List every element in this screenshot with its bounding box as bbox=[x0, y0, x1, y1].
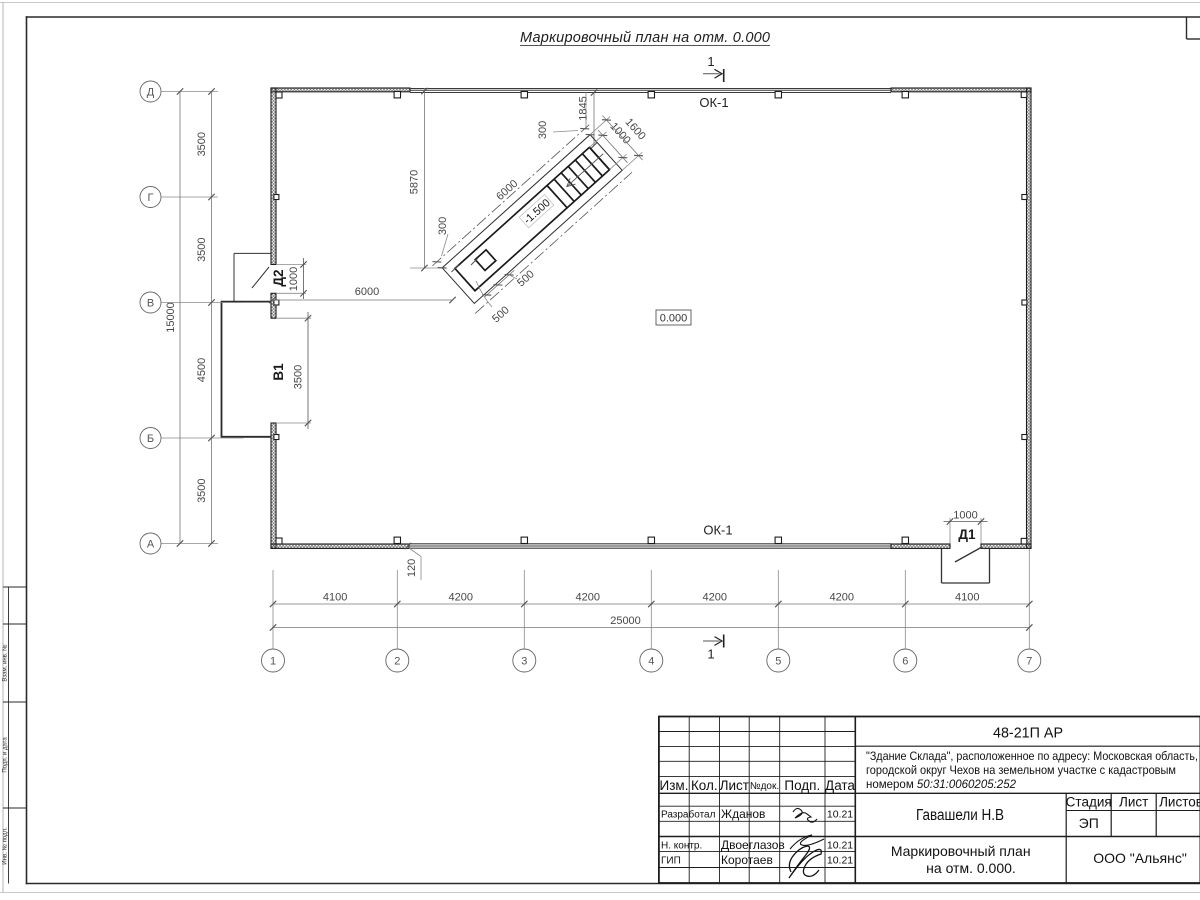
svg-text:"Здание Склада", расположенное: "Здание Склада", расположенное по адресу… bbox=[866, 749, 1198, 763]
svg-text:Б: Б bbox=[147, 433, 154, 445]
svg-text:ГИП: ГИП bbox=[661, 856, 681, 867]
svg-text:4200: 4200 bbox=[576, 592, 600, 604]
svg-text:48-21П АР: 48-21П АР bbox=[993, 725, 1063, 742]
svg-text:5: 5 bbox=[775, 656, 781, 668]
svg-text:Стадия: Стадия bbox=[1066, 795, 1112, 810]
svg-text:7: 7 bbox=[1026, 656, 1032, 668]
svg-text:3500: 3500 bbox=[196, 237, 208, 261]
svg-text:4200: 4200 bbox=[830, 592, 854, 604]
svg-text:Коротаев: Коротаев bbox=[721, 853, 773, 867]
svg-text:№док.: №док. bbox=[750, 781, 779, 792]
svg-text:Разработал: Разработал bbox=[661, 809, 716, 821]
svg-text:3: 3 bbox=[521, 656, 527, 668]
svg-text:ЭП: ЭП bbox=[1079, 815, 1099, 831]
svg-text:5870: 5870 bbox=[409, 170, 421, 194]
svg-text:Д: Д bbox=[147, 87, 155, 99]
svg-text:Лист: Лист bbox=[1119, 795, 1148, 810]
svg-text:Подп. и дата: Подп. и дата bbox=[3, 737, 9, 773]
svg-text:ООО "Альянс": ООО "Альянс" bbox=[1093, 850, 1187, 866]
svg-text:10.21: 10.21 bbox=[827, 855, 853, 867]
svg-text:Маркировочный план: Маркировочный план bbox=[891, 843, 1031, 859]
svg-text:6: 6 bbox=[902, 656, 908, 668]
svg-text:0.000: 0.000 bbox=[660, 313, 688, 325]
svg-text:Изм.: Изм. bbox=[660, 778, 689, 793]
svg-text:4: 4 bbox=[648, 656, 654, 668]
svg-text:15000: 15000 bbox=[165, 302, 177, 333]
svg-text:1000: 1000 bbox=[953, 510, 977, 522]
svg-text:4500: 4500 bbox=[196, 358, 208, 382]
svg-text:25000: 25000 bbox=[610, 615, 641, 627]
svg-text:10.21: 10.21 bbox=[827, 840, 853, 852]
svg-text:1845: 1845 bbox=[578, 96, 590, 120]
svg-text:4100: 4100 bbox=[955, 592, 979, 604]
svg-text:городской округ Чехов на земел: городской округ Чехов на земельном участ… bbox=[866, 763, 1176, 777]
svg-text:Маркировочный план на отм. 0.0: Маркировочный план на отм. 0.000 bbox=[520, 30, 770, 46]
svg-text:1000: 1000 bbox=[288, 267, 300, 291]
svg-text:Д1: Д1 bbox=[958, 527, 976, 542]
svg-text:ОК-1: ОК-1 bbox=[699, 95, 728, 110]
svg-text:Г: Г bbox=[148, 192, 154, 204]
svg-text:3500: 3500 bbox=[196, 478, 208, 502]
svg-text:10.21: 10.21 bbox=[827, 809, 853, 821]
svg-text:6000: 6000 bbox=[355, 286, 379, 298]
svg-text:3500: 3500 bbox=[196, 132, 208, 156]
svg-text:ОК-1: ОК-1 bbox=[703, 523, 732, 538]
svg-text:Кол.: Кол. bbox=[691, 778, 718, 793]
svg-text:Жданов: Жданов bbox=[721, 807, 765, 821]
svg-text:Дата: Дата bbox=[825, 778, 855, 793]
svg-text:номером 50:31:0060205:252: номером 50:31:0060205:252 bbox=[866, 777, 1016, 791]
svg-text:120: 120 bbox=[406, 559, 418, 577]
svg-text:Двоеглазов: Двоеглазов bbox=[721, 838, 785, 852]
svg-text:Гавашели Н.В: Гавашели Н.В bbox=[916, 807, 1004, 824]
svg-text:2: 2 bbox=[394, 656, 400, 668]
svg-text:Инв. № подл.: Инв. № подл. bbox=[2, 827, 9, 865]
svg-text:на отм. 0.000.: на отм. 0.000. bbox=[926, 860, 1016, 876]
svg-text:300: 300 bbox=[537, 121, 549, 139]
svg-text:4200: 4200 bbox=[703, 592, 727, 604]
svg-text:Н. контр.: Н. контр. bbox=[661, 841, 702, 852]
svg-text:1: 1 bbox=[270, 656, 276, 668]
svg-text:4200: 4200 bbox=[449, 592, 473, 604]
svg-text:1: 1 bbox=[707, 54, 714, 69]
svg-text:В: В bbox=[147, 298, 154, 310]
svg-text:А: А bbox=[147, 539, 155, 551]
svg-text:1: 1 bbox=[707, 647, 714, 662]
svg-text:Д2: Д2 bbox=[271, 269, 286, 286]
svg-text:3500: 3500 bbox=[293, 365, 305, 389]
svg-text:Подп.: Подп. bbox=[784, 778, 820, 793]
svg-text:Взам. инв. №: Взам. инв. № bbox=[2, 644, 9, 681]
svg-text:300: 300 bbox=[437, 217, 449, 235]
svg-text:Лист: Лист bbox=[720, 778, 749, 793]
svg-text:4100: 4100 bbox=[323, 592, 347, 604]
svg-text:Листов: Листов bbox=[1159, 795, 1200, 810]
svg-text:В1: В1 bbox=[271, 363, 286, 381]
